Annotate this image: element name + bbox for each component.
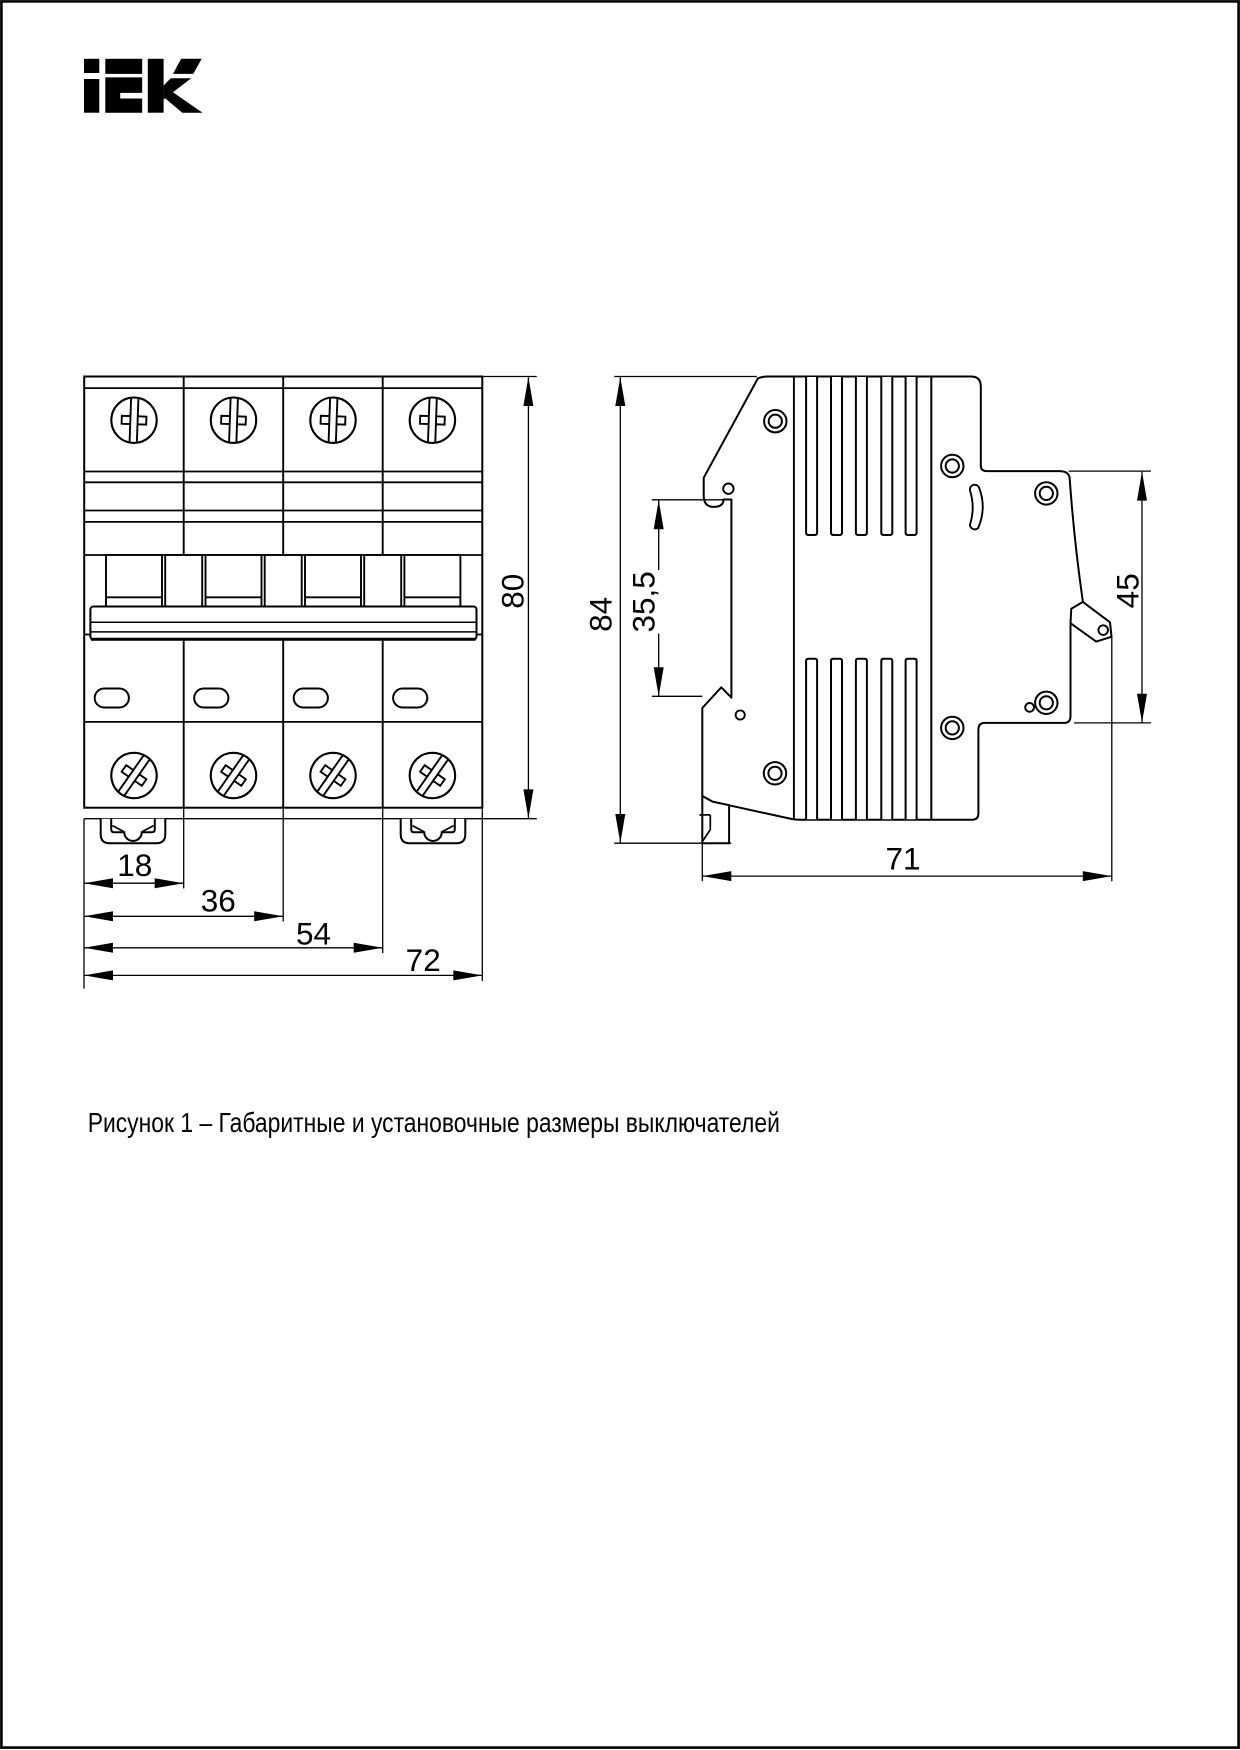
svg-text:72: 72 [406, 942, 441, 978]
svg-text:71: 71 [885, 840, 920, 876]
svg-text:18: 18 [117, 847, 152, 883]
svg-text:80: 80 [495, 574, 531, 609]
svg-text:84: 84 [582, 597, 618, 632]
svg-text:Рисунок 1 – Габаритные и устан: Рисунок 1 – Габаритные и установочные ра… [88, 1108, 780, 1139]
svg-text:54: 54 [296, 915, 331, 951]
svg-text:45: 45 [1109, 573, 1145, 608]
svg-text:35,5: 35,5 [626, 571, 662, 632]
svg-text:36: 36 [201, 882, 236, 918]
